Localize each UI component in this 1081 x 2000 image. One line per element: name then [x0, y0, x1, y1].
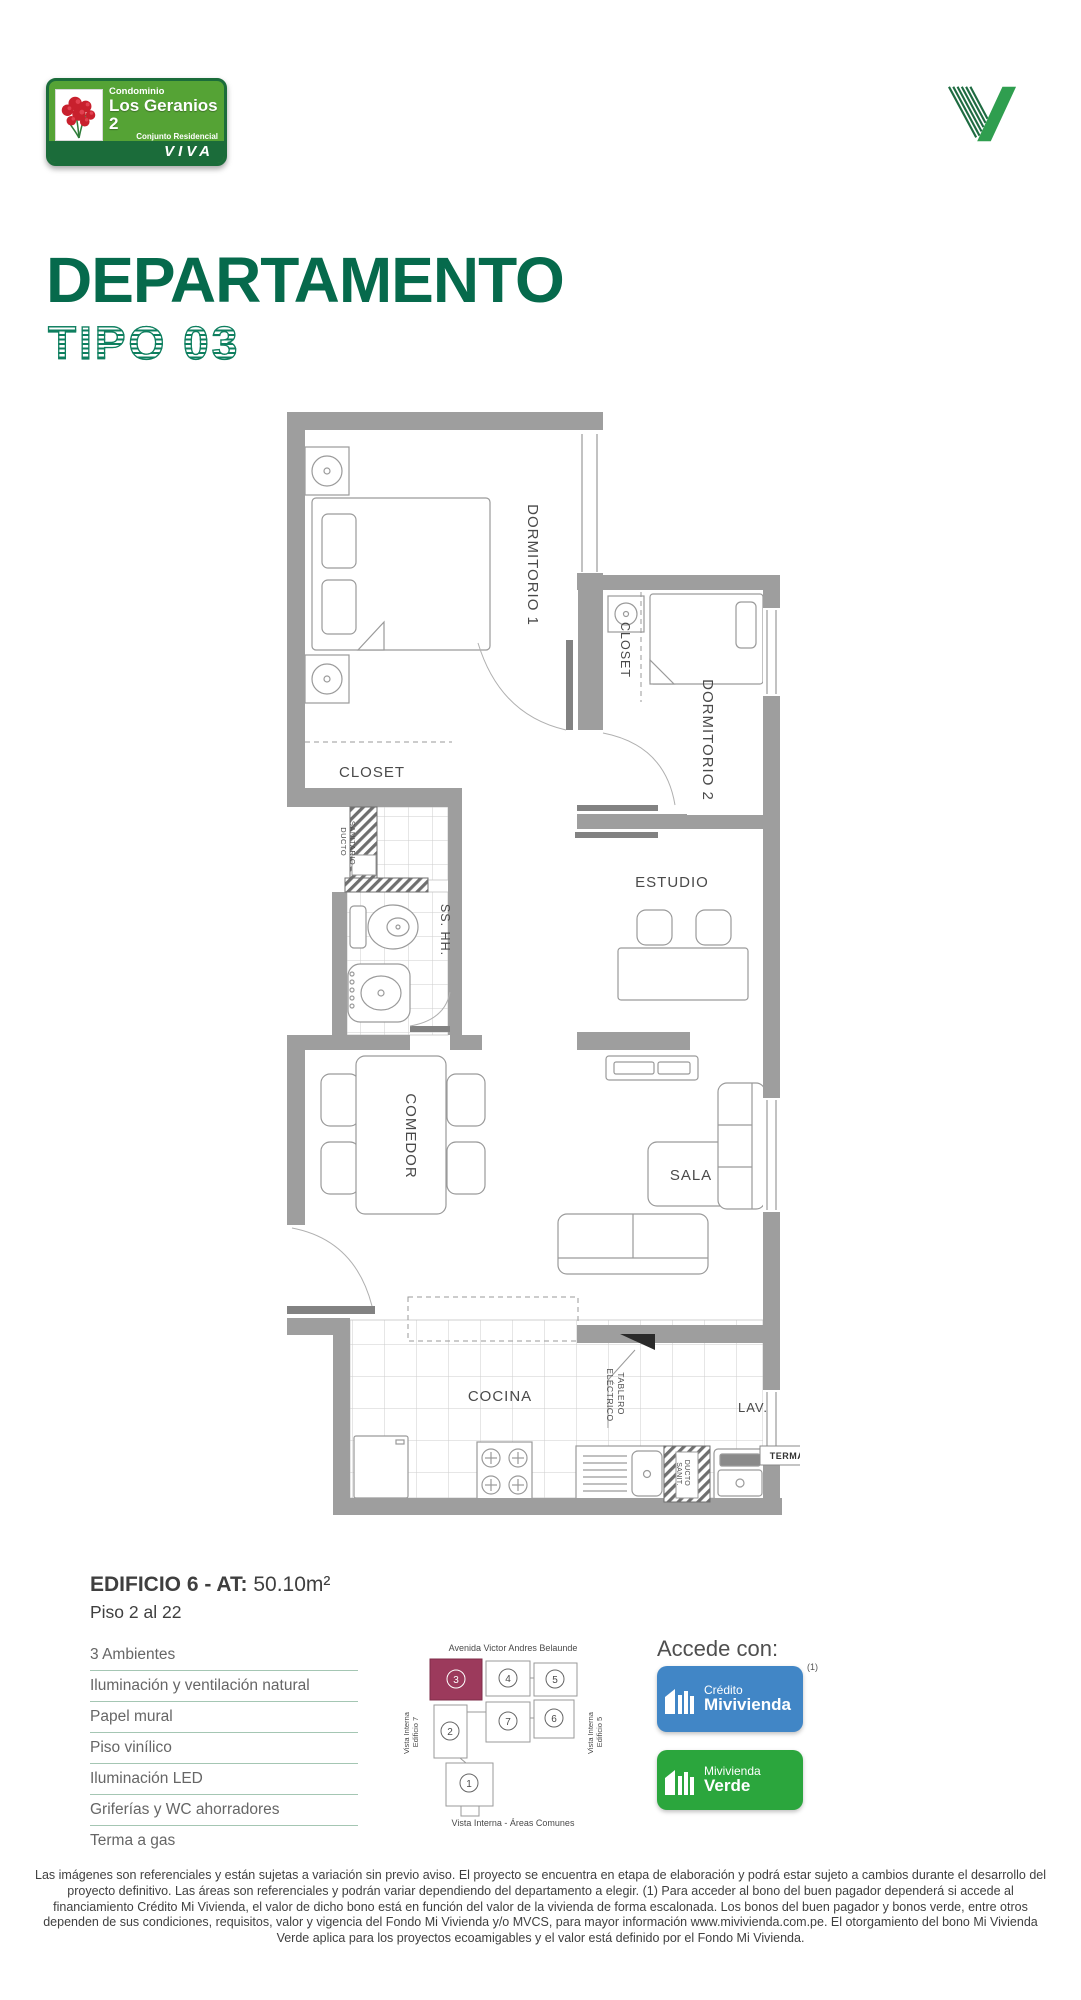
features-list: 3 Ambientes Iluminación y ventilación na…	[90, 1640, 358, 1856]
label-terma: TERMA	[770, 1451, 800, 1461]
building-area: 50.10m²	[248, 1573, 331, 1596]
floors-line: Piso 2 al 22	[90, 1602, 358, 1623]
estudio-furniture	[618, 910, 748, 1000]
page-title: DEPARTAMENTO	[46, 243, 564, 317]
terma-box: TERMA	[760, 1446, 800, 1465]
feature-item: Papel mural	[90, 1702, 358, 1733]
building-title: EDIFICIO 6 - AT: 50.10m²	[90, 1573, 358, 1597]
brochure-page: Condominio Los Geranios 2 Conjunto Resid…	[0, 0, 1081, 2000]
geranium-flower-image	[55, 89, 103, 141]
feature-item: Griferías y WC ahorradores	[90, 1795, 358, 1826]
svg-text:1: 1	[466, 1779, 472, 1790]
label-dormitorio-1: DORMITORIO 1	[524, 504, 541, 626]
label-closet-dorm2: CLOSET	[618, 622, 632, 678]
mivivienda-verde-button[interactable]: Mivivienda Verde	[657, 1750, 803, 1810]
project-logo-badge: Condominio Los Geranios 2 Conjunto Resid…	[46, 78, 227, 166]
svg-text:3: 3	[453, 1675, 459, 1686]
credito-label-bottom: Mivivienda	[704, 1696, 791, 1714]
siteplan-left-label: Vista Interna Edificio 7	[402, 1710, 420, 1754]
svg-text:2: 2	[447, 1727, 453, 1738]
street-label: Avenida Victor Andres Belaunde	[449, 1643, 578, 1653]
svg-text:7: 7	[505, 1717, 511, 1728]
access-heading: Accede con:	[657, 1636, 778, 1662]
svg-text:4: 4	[505, 1674, 511, 1685]
svg-text:6: 6	[551, 1714, 557, 1725]
label-sala: SALA	[670, 1167, 712, 1184]
mivivienda-house-icon	[665, 1684, 697, 1714]
feature-item: Iluminación LED	[90, 1764, 358, 1795]
site-plan: Avenida Victor Andres Belaunde 3 4	[393, 1632, 617, 1832]
viva-v-logo-icon	[948, 86, 1018, 144]
label-estudio: ESTUDIO	[635, 874, 709, 891]
label-closet-dorm1: CLOSET	[339, 764, 405, 781]
label-tablero-electrico: TABLERO ELÉCTRICO	[605, 1368, 626, 1421]
label-ducto-sanit: DUCTO SANIT.	[675, 1460, 690, 1489]
svg-text:5: 5	[552, 1675, 558, 1686]
siteplan-bottom-label: Vista Interna - Áreas Comunes	[452, 1818, 575, 1828]
footnote-marker: (1)	[807, 1662, 818, 1672]
feature-item: Iluminación y ventilación natural	[90, 1671, 358, 1702]
siteplan-right-label: Vista Interna Edificio 5	[586, 1710, 604, 1754]
legal-disclaimer: Las imágenes son referenciales y están s…	[35, 1868, 1046, 1947]
sala-furniture	[558, 1056, 765, 1274]
page-subtitle: TIPO 03	[48, 316, 240, 370]
info-section: EDIFICIO 6 - AT: 50.10m² Piso 2 al 22 3 …	[90, 1573, 358, 1856]
credito-mivivienda-button[interactable]: Crédito Mivivienda	[657, 1666, 803, 1732]
dorm1-furniture	[305, 447, 490, 703]
viva-brand-label: VIVA	[49, 141, 224, 163]
feature-item: 3 Ambientes	[90, 1640, 358, 1671]
feature-item: Piso vinílico	[90, 1733, 358, 1764]
label-dormitorio-2: DORMITORIO 2	[699, 679, 716, 801]
badge-project-name: Los Geranios 2	[109, 97, 218, 133]
mivivienda-verde-house-icon	[665, 1765, 697, 1795]
building-title-bold: EDIFICIO 6 - AT:	[90, 1573, 248, 1596]
label-ss-hh: SS. HH.	[438, 904, 452, 956]
label-cocina: COCINA	[468, 1388, 532, 1405]
label-lav: LAV.	[738, 1400, 768, 1415]
label-comedor: COMEDOR	[402, 1093, 419, 1178]
feature-item: Terma a gas	[90, 1826, 358, 1856]
floor-plan: DORMITORIO 1 CLOSET DORMITORIO 2 CLOSET …	[270, 400, 800, 1520]
verde-label-bottom: Verde	[704, 1777, 761, 1795]
label-ducto-sanitario: DUCTO SANITARIO	[339, 821, 357, 865]
